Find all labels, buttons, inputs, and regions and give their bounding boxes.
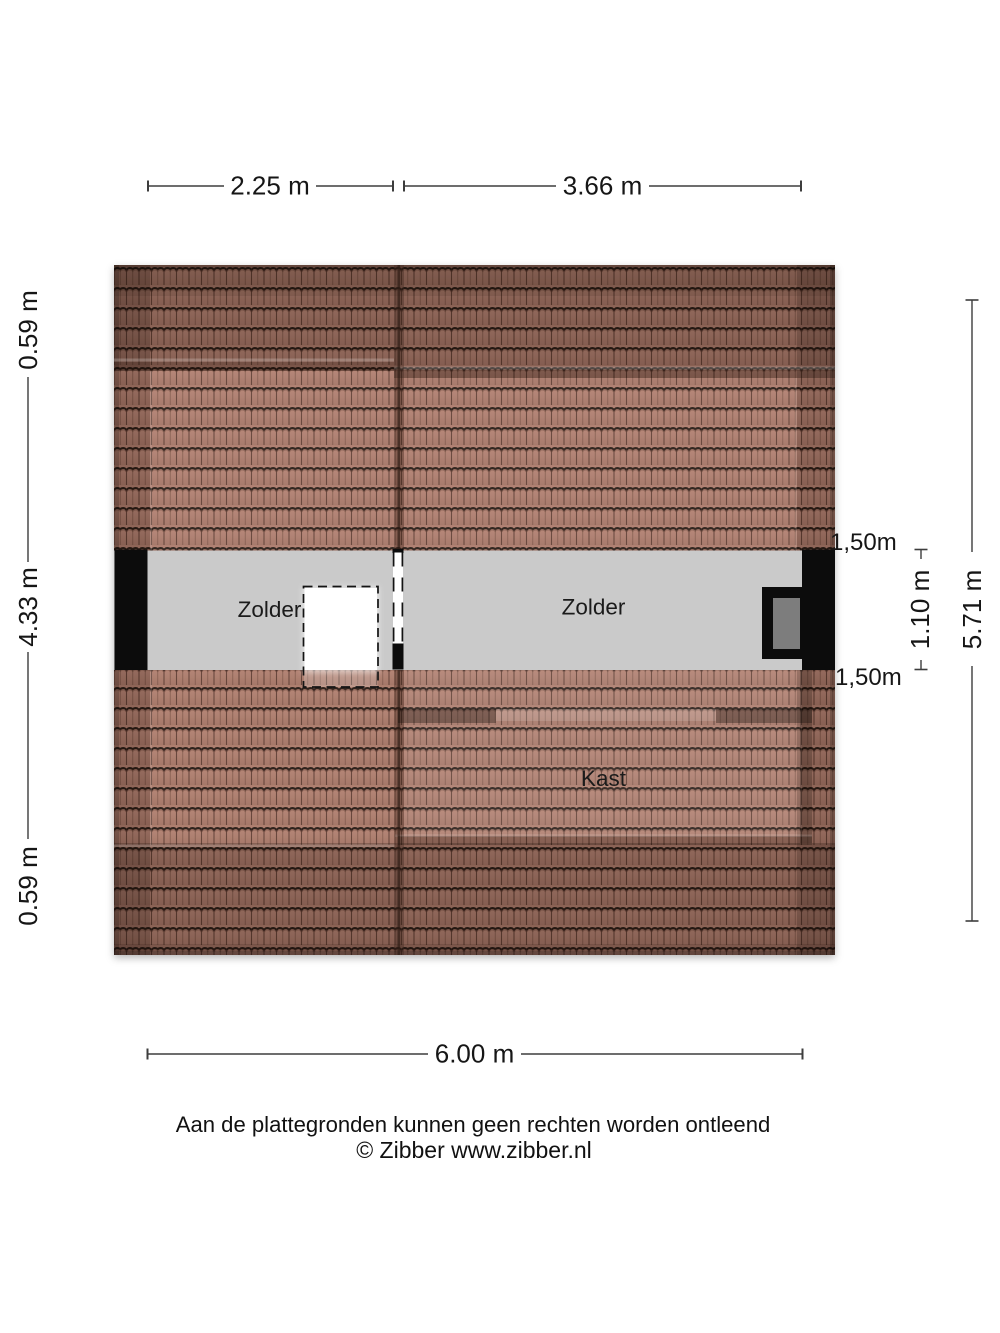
svg-text:5.71 m: 5.71 m [957,570,987,650]
svg-text:1,50m: 1,50m [830,529,897,556]
svg-text:Aan de plattegronden kunnen ge: Aan de plattegronden kunnen geen rechten… [176,1112,771,1137]
svg-text:6.00 m: 6.00 m [435,1039,515,1069]
svg-text:Zolder: Zolder [562,595,626,620]
svg-text:0.59 m: 0.59 m [13,290,43,370]
svg-text:Zolder: Zolder [238,597,302,622]
svg-text:1,50m: 1,50m [835,664,902,691]
svg-text:© Zibber www.zibber.nl: © Zibber www.zibber.nl [356,1137,592,1163]
svg-text:4.33 m: 4.33 m [13,567,43,647]
svg-text:3.66 m: 3.66 m [563,171,643,201]
svg-text:1.10 m: 1.10 m [905,570,935,650]
svg-text:Kast: Kast [581,766,627,791]
svg-text:0.59 m: 0.59 m [13,846,43,926]
svg-text:2.25 m: 2.25 m [230,171,310,201]
